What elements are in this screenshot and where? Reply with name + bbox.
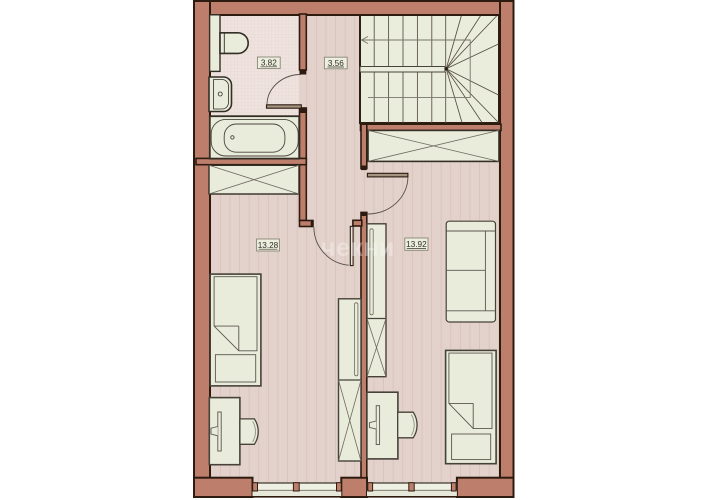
svg-text:3.56: 3.56	[328, 59, 344, 68]
svg-text:13.28: 13.28	[258, 241, 279, 250]
svg-text:13.92: 13.92	[406, 240, 427, 249]
svg-text:чекни: чекни	[321, 234, 395, 262]
svg-text:3.82: 3.82	[261, 59, 277, 68]
